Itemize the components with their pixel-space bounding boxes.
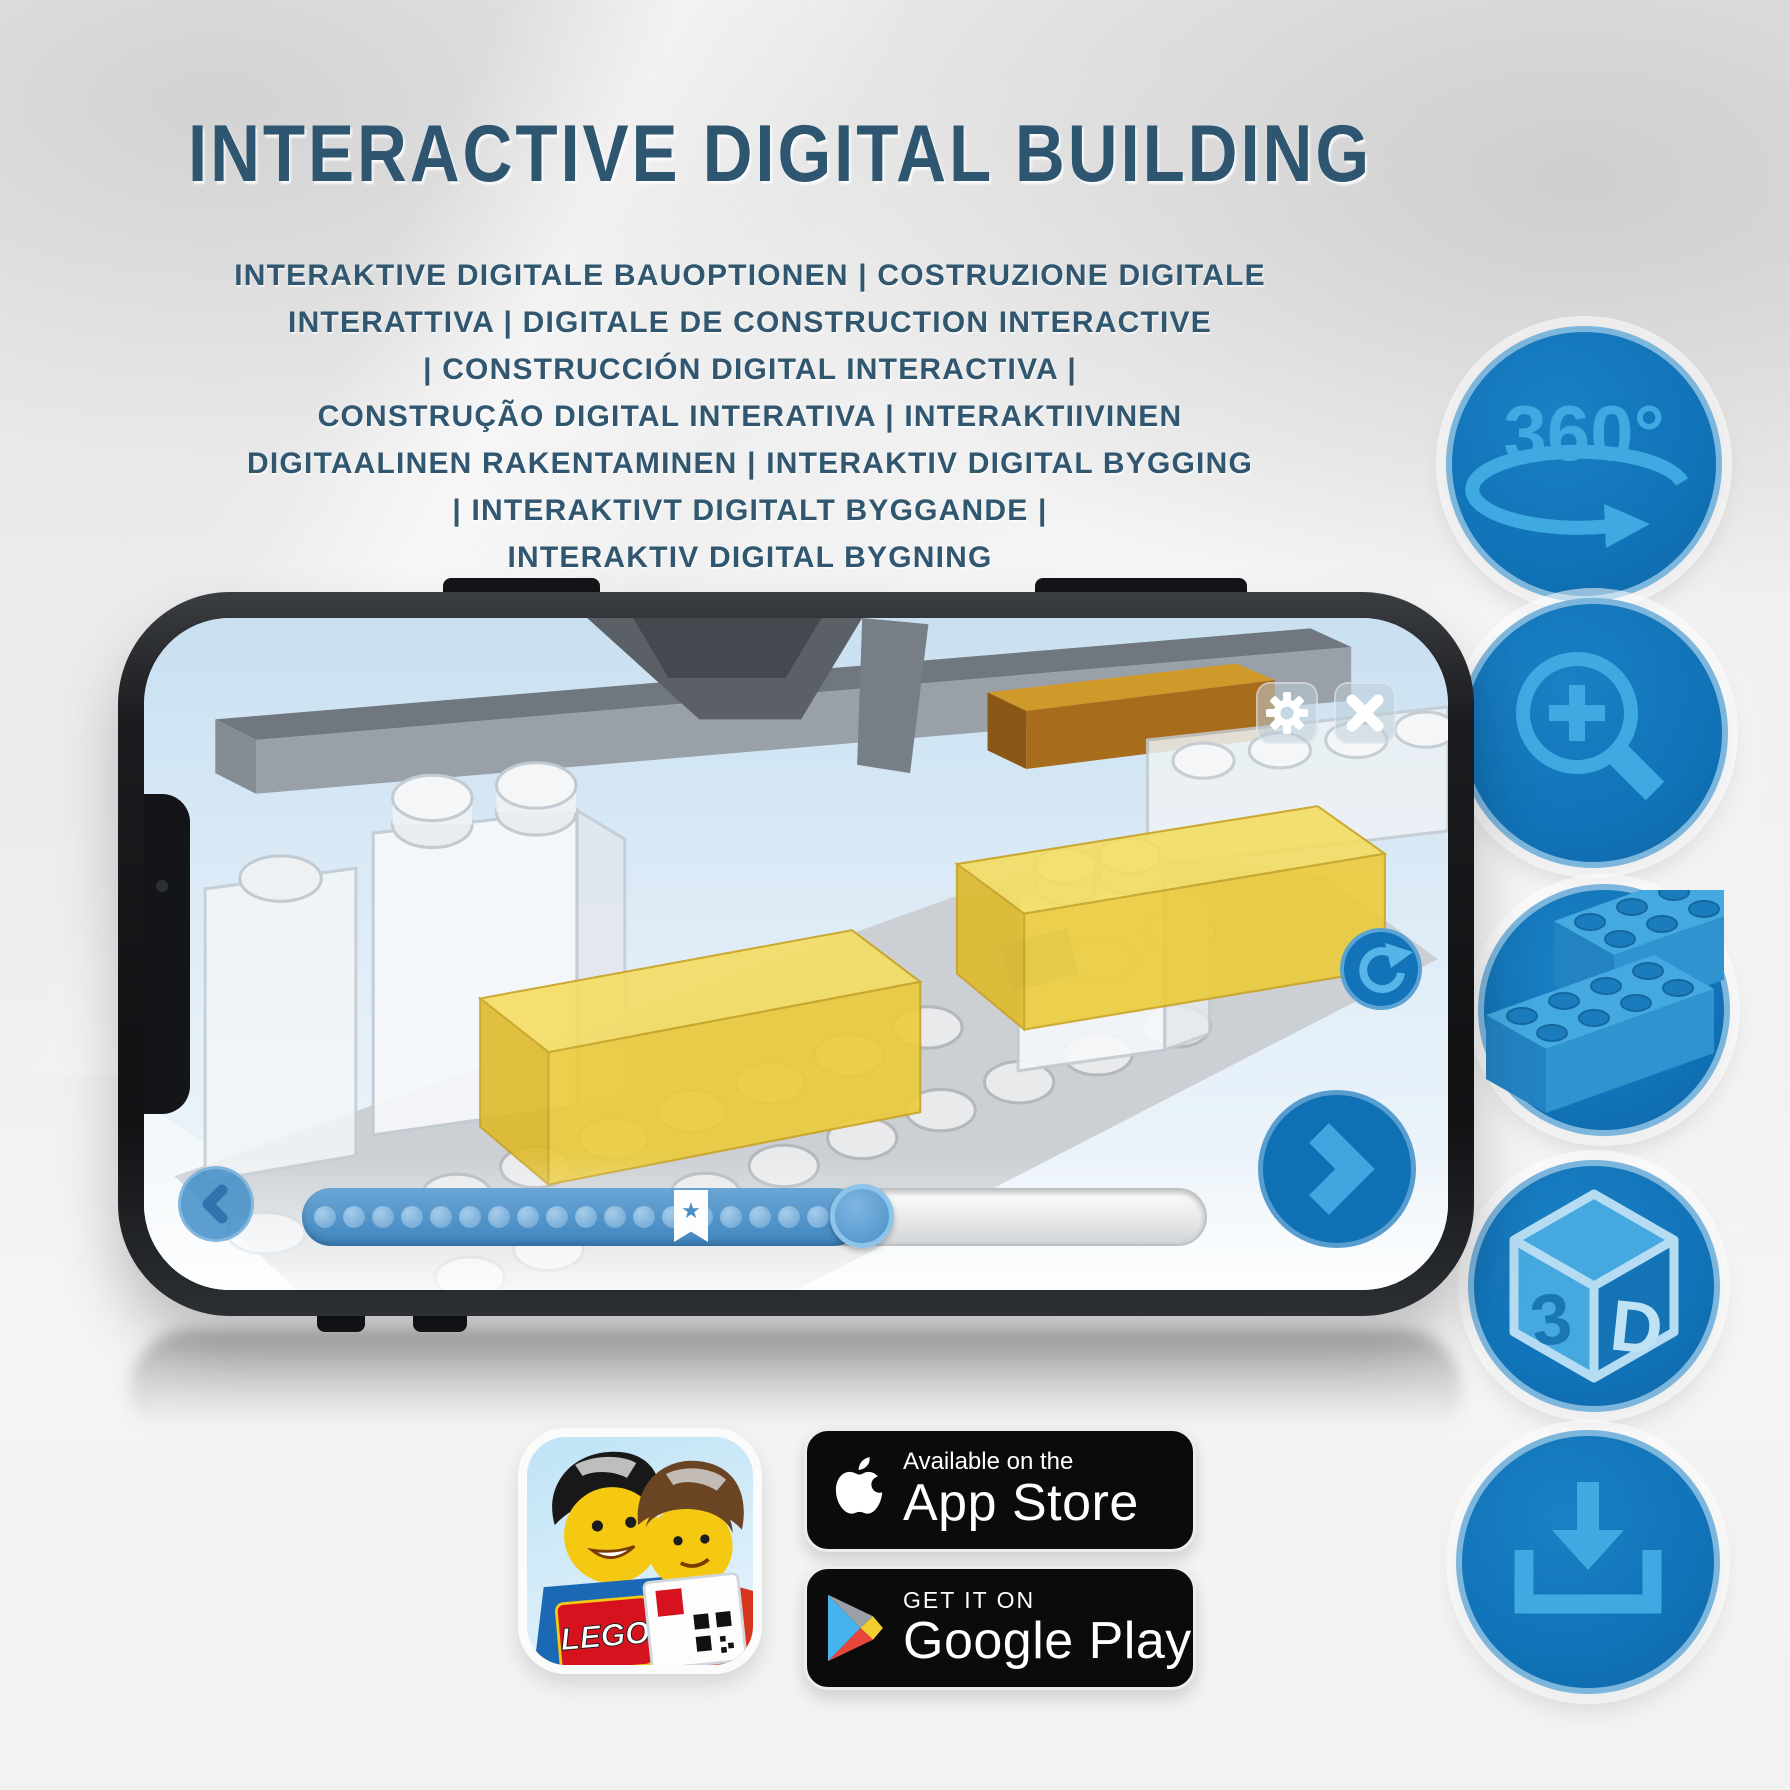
brick-icon (1478, 884, 1730, 1136)
close-button[interactable] (1334, 682, 1396, 744)
subtitle-line: INTERATTIVA | DIGITALE DE CONSTRUCTION I… (190, 299, 1310, 346)
3d-cube-icon: 3 D (1468, 1160, 1720, 1412)
gear-icon (1256, 682, 1318, 744)
subtitle-line: INTERAKTIVE DIGITALE BAUOPTIONEN | COSTR… (190, 252, 1310, 299)
progress-dots (302, 1188, 863, 1246)
apple-icon (807, 1455, 903, 1525)
subtitle-line: INTERAKTIV DIGITAL BYGNING (190, 534, 1310, 581)
progress-fill (302, 1188, 863, 1246)
subtitle-line: | INTERAKTIVT DIGITALT BYGGANDE | (190, 487, 1310, 534)
app-store-tagline: Available on the (903, 1449, 1139, 1474)
rotate-icon (1344, 932, 1418, 1006)
rotation-360-icon: 360° (1446, 326, 1722, 602)
next-step-button[interactable] (1258, 1090, 1416, 1248)
star-icon: ★ (681, 1198, 701, 1224)
phone: ★ (118, 592, 1474, 1316)
play-store-icon (807, 1592, 903, 1664)
phone-notch (144, 794, 190, 1114)
lego-app-icon[interactable]: LEGO (518, 1428, 762, 1674)
phone-screen: ★ (144, 618, 1448, 1290)
front-camera (156, 880, 168, 892)
app-store-name: App Store (903, 1476, 1139, 1531)
phone-reflection (130, 1330, 1462, 1450)
download-icon (1456, 1430, 1720, 1694)
close-icon (1334, 682, 1396, 744)
subtitle-line: CONSTRUÇÃO DIGITAL INTERATIVA | INTERAKT… (190, 393, 1310, 440)
google-play-tagline: GET IT ON (903, 1588, 1192, 1612)
multilingual-subtitle: INTERAKTIVE DIGITALE BAUOPTIONEN | COSTR… (190, 252, 1310, 581)
progress-thumb[interactable] (830, 1184, 894, 1248)
subtitle-line: | CONSTRUCCIÓN DIGITAL INTERACTIVA | (190, 346, 1310, 393)
cube-d-label: D (1607, 1286, 1667, 1371)
google-play-badge[interactable]: GET IT ON Google Play (804, 1566, 1196, 1690)
marketing-page: INTERACTIVE DIGITAL BUILDING INTERAKTIVE… (0, 0, 1790, 1790)
rotation-arrowhead (1604, 504, 1650, 548)
progress-bar[interactable]: ★ (302, 1188, 1207, 1246)
chevron-right-icon (1263, 1095, 1411, 1243)
settings-button[interactable] (1256, 682, 1318, 744)
previous-step-button[interactable] (178, 1166, 254, 1242)
app-store-badge[interactable]: Available on the App Store (804, 1428, 1196, 1552)
chevron-left-icon (181, 1169, 251, 1239)
zoom-in-icon (1458, 598, 1728, 868)
page-title: INTERACTIVE DIGITAL BUILDING (118, 108, 1443, 200)
google-play-name: Google Play (903, 1614, 1192, 1669)
rotate-view-button[interactable] (1340, 928, 1422, 1010)
subtitle-line: DIGITAALINEN RAKENTAMINEN | INTERAKTIV D… (190, 440, 1310, 487)
